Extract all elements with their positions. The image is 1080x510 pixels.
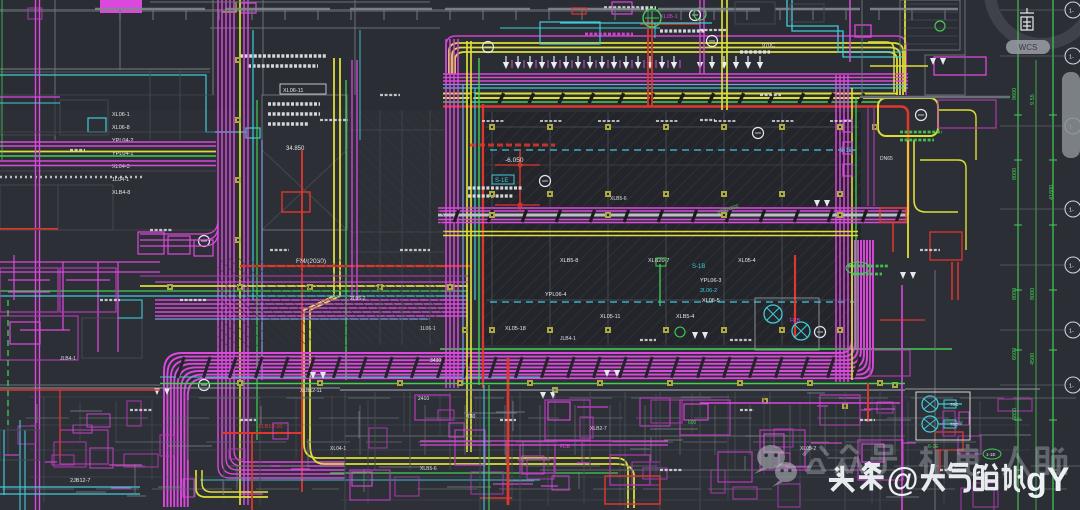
- svg-text:gY: gY: [1026, 461, 1070, 499]
- svg-text:@: @: [886, 461, 920, 498]
